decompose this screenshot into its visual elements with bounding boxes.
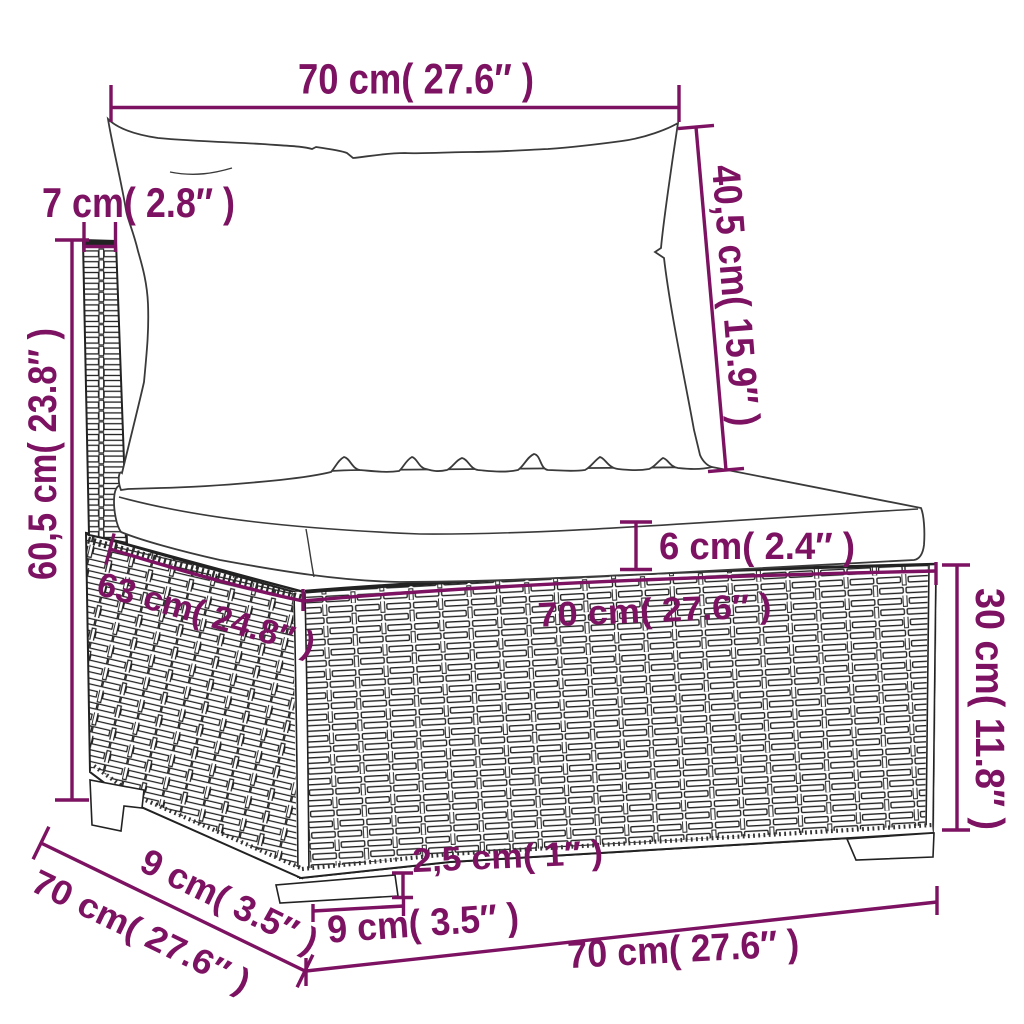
svg-text:30 cm( 11.8″ ): 30 cm( 11.8″ ) [967, 588, 1013, 830]
svg-text:7 cm( 2.8″ ): 7 cm( 2.8″ ) [42, 179, 235, 226]
svg-text:6 cm( 2.4″ ): 6 cm( 2.4″ ) [659, 526, 855, 568]
svg-text:60,5 cm( 23.8″ ): 60,5 cm( 23.8″ ) [21, 328, 65, 580]
svg-text:70 cm( 27.6″ ): 70 cm( 27.6″ ) [298, 56, 534, 104]
